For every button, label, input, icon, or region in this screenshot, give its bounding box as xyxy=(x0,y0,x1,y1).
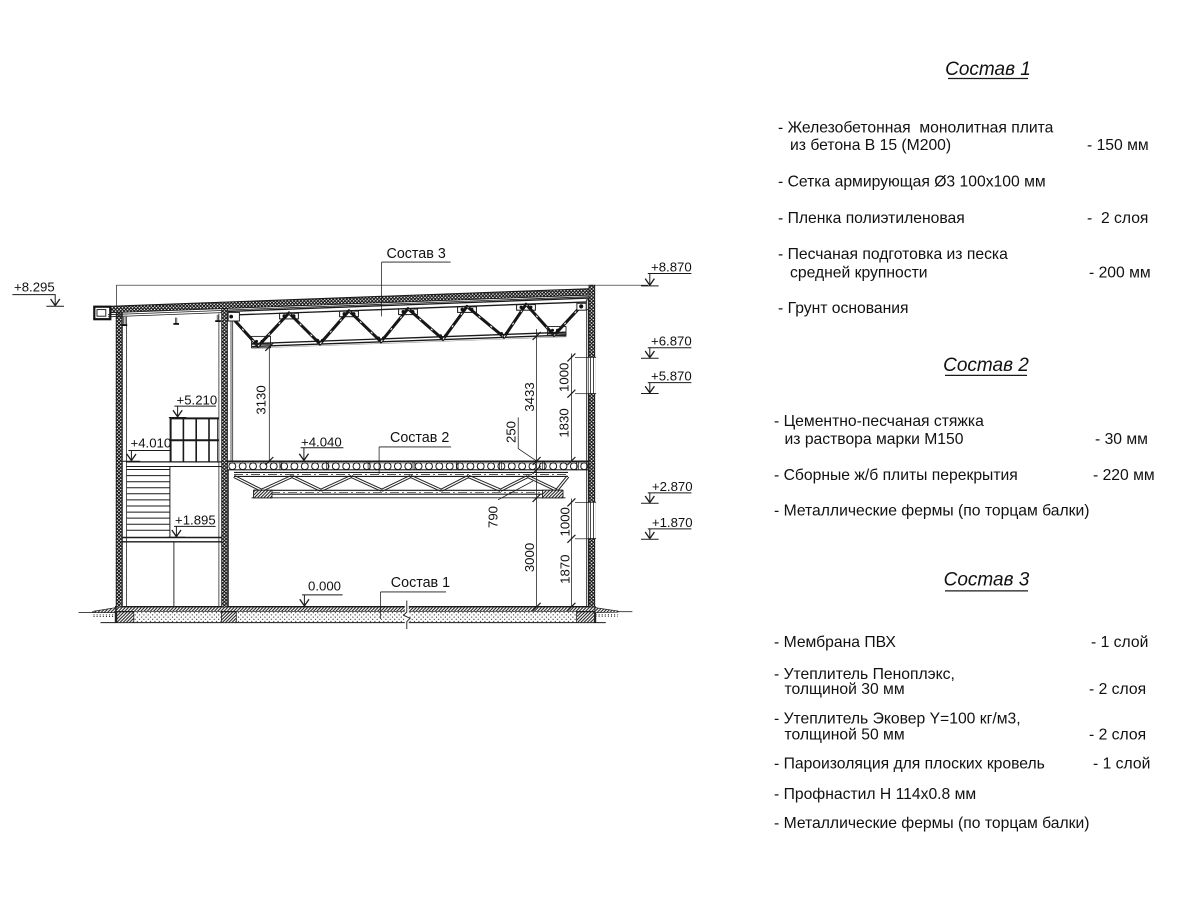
svg-text:+4.010: +4.010 xyxy=(131,436,172,451)
svg-text:1000: 1000 xyxy=(558,507,573,536)
svg-text:790: 790 xyxy=(486,506,501,528)
svg-text:- 30 мм: - 30 мм xyxy=(1095,431,1148,448)
svg-text:+5.210: +5.210 xyxy=(177,392,218,407)
svg-text:- 150 мм: - 150 мм xyxy=(1087,137,1149,154)
svg-text:+5.870: +5.870 xyxy=(651,369,692,384)
svg-text:- 1 слой: - 1 слой xyxy=(1093,756,1150,773)
svg-text:250: 250 xyxy=(504,421,519,443)
svg-text:- Железобетонная монолитная п: - Железобетонная монолитная плита xyxy=(778,120,1054,137)
svg-text:- Мембрана ПВХ: - Мембрана ПВХ xyxy=(774,634,896,651)
svg-text:- 1 слой: - 1 слой xyxy=(1091,634,1148,651)
svg-text:Состав 2: Состав 2 xyxy=(943,355,1029,376)
svg-text:1830: 1830 xyxy=(556,408,571,437)
svg-text:- Пленка полиэтиленовая: - Пленка полиэтиленовая xyxy=(778,210,965,227)
svg-text:3433: 3433 xyxy=(522,382,537,411)
svg-text:- Песчаная подготовка из песка: - Песчаная подготовка из песка xyxy=(778,246,1008,263)
svg-text:- Профнастил Н 114х0.8 мм: - Профнастил Н 114х0.8 мм xyxy=(774,786,976,803)
svg-text:1870: 1870 xyxy=(558,555,573,584)
svg-text:1000: 1000 xyxy=(556,363,571,392)
svg-text:Состав 3: Состав 3 xyxy=(387,246,446,262)
svg-text:Состав 1: Состав 1 xyxy=(391,575,450,591)
svg-text:- Пароизоляция для плоских кро: - Пароизоляция для плоских кровель xyxy=(774,756,1045,773)
svg-text:+1.870: +1.870 xyxy=(652,515,693,530)
svg-text:толщиной 30 мм: толщиной 30 мм xyxy=(785,681,905,698)
svg-text:+8.295: +8.295 xyxy=(14,280,55,295)
svg-text:+2.870: +2.870 xyxy=(652,479,693,494)
svg-text:Состав 2: Состав 2 xyxy=(390,430,449,446)
svg-text:3130: 3130 xyxy=(254,385,269,414)
svg-text:средней крупности: средней крупности xyxy=(790,265,928,282)
svg-text:Состав 1: Состав 1 xyxy=(945,59,1031,80)
svg-text:- Утеплитель Эковер Y=100 кг/м: - Утеплитель Эковер Y=100 кг/м3, xyxy=(774,711,1021,728)
svg-text:- 2 слоя: - 2 слоя xyxy=(1087,210,1148,227)
svg-text:- Цементно-песчаная стяжка: - Цементно-песчаная стяжка xyxy=(774,413,984,430)
svg-text:- Грунт основания: - Грунт основания xyxy=(778,300,909,317)
svg-text:0.000: 0.000 xyxy=(308,579,341,594)
svg-text:- Сборные ж/б плиты перекрытия: - Сборные ж/б плиты перекрытия xyxy=(774,467,1018,484)
svg-text:толщиной 50 мм: толщиной 50 мм xyxy=(785,727,905,744)
svg-text:- 2 слоя: - 2 слоя xyxy=(1089,681,1146,698)
svg-text:- Металлические фермы (по торц: - Металлические фермы (по торцам балки) xyxy=(774,503,1090,520)
svg-text:+1.895: +1.895 xyxy=(175,513,216,528)
svg-text:- Сетка армирующая Ø3 100х100: - Сетка армирующая Ø3 100х100 мм xyxy=(778,173,1046,190)
svg-text:- Металлические фермы (по торц: - Металлические фермы (по торцам балки) xyxy=(774,815,1090,832)
svg-text:из раствора марки М150: из раствора марки М150 xyxy=(785,431,964,448)
svg-text:+8.870: +8.870 xyxy=(651,260,692,275)
svg-text:- 200 мм: - 200 мм xyxy=(1089,265,1151,282)
svg-text:3000: 3000 xyxy=(522,543,537,572)
svg-text:+6.870: +6.870 xyxy=(651,334,692,349)
svg-text:- 2 слоя: - 2 слоя xyxy=(1089,727,1146,744)
svg-text:- 220 мм: - 220 мм xyxy=(1093,467,1155,484)
svg-text:Состав 3: Состав 3 xyxy=(944,570,1030,591)
svg-text:из бетона В 15 (М200): из бетона В 15 (М200) xyxy=(790,137,951,154)
